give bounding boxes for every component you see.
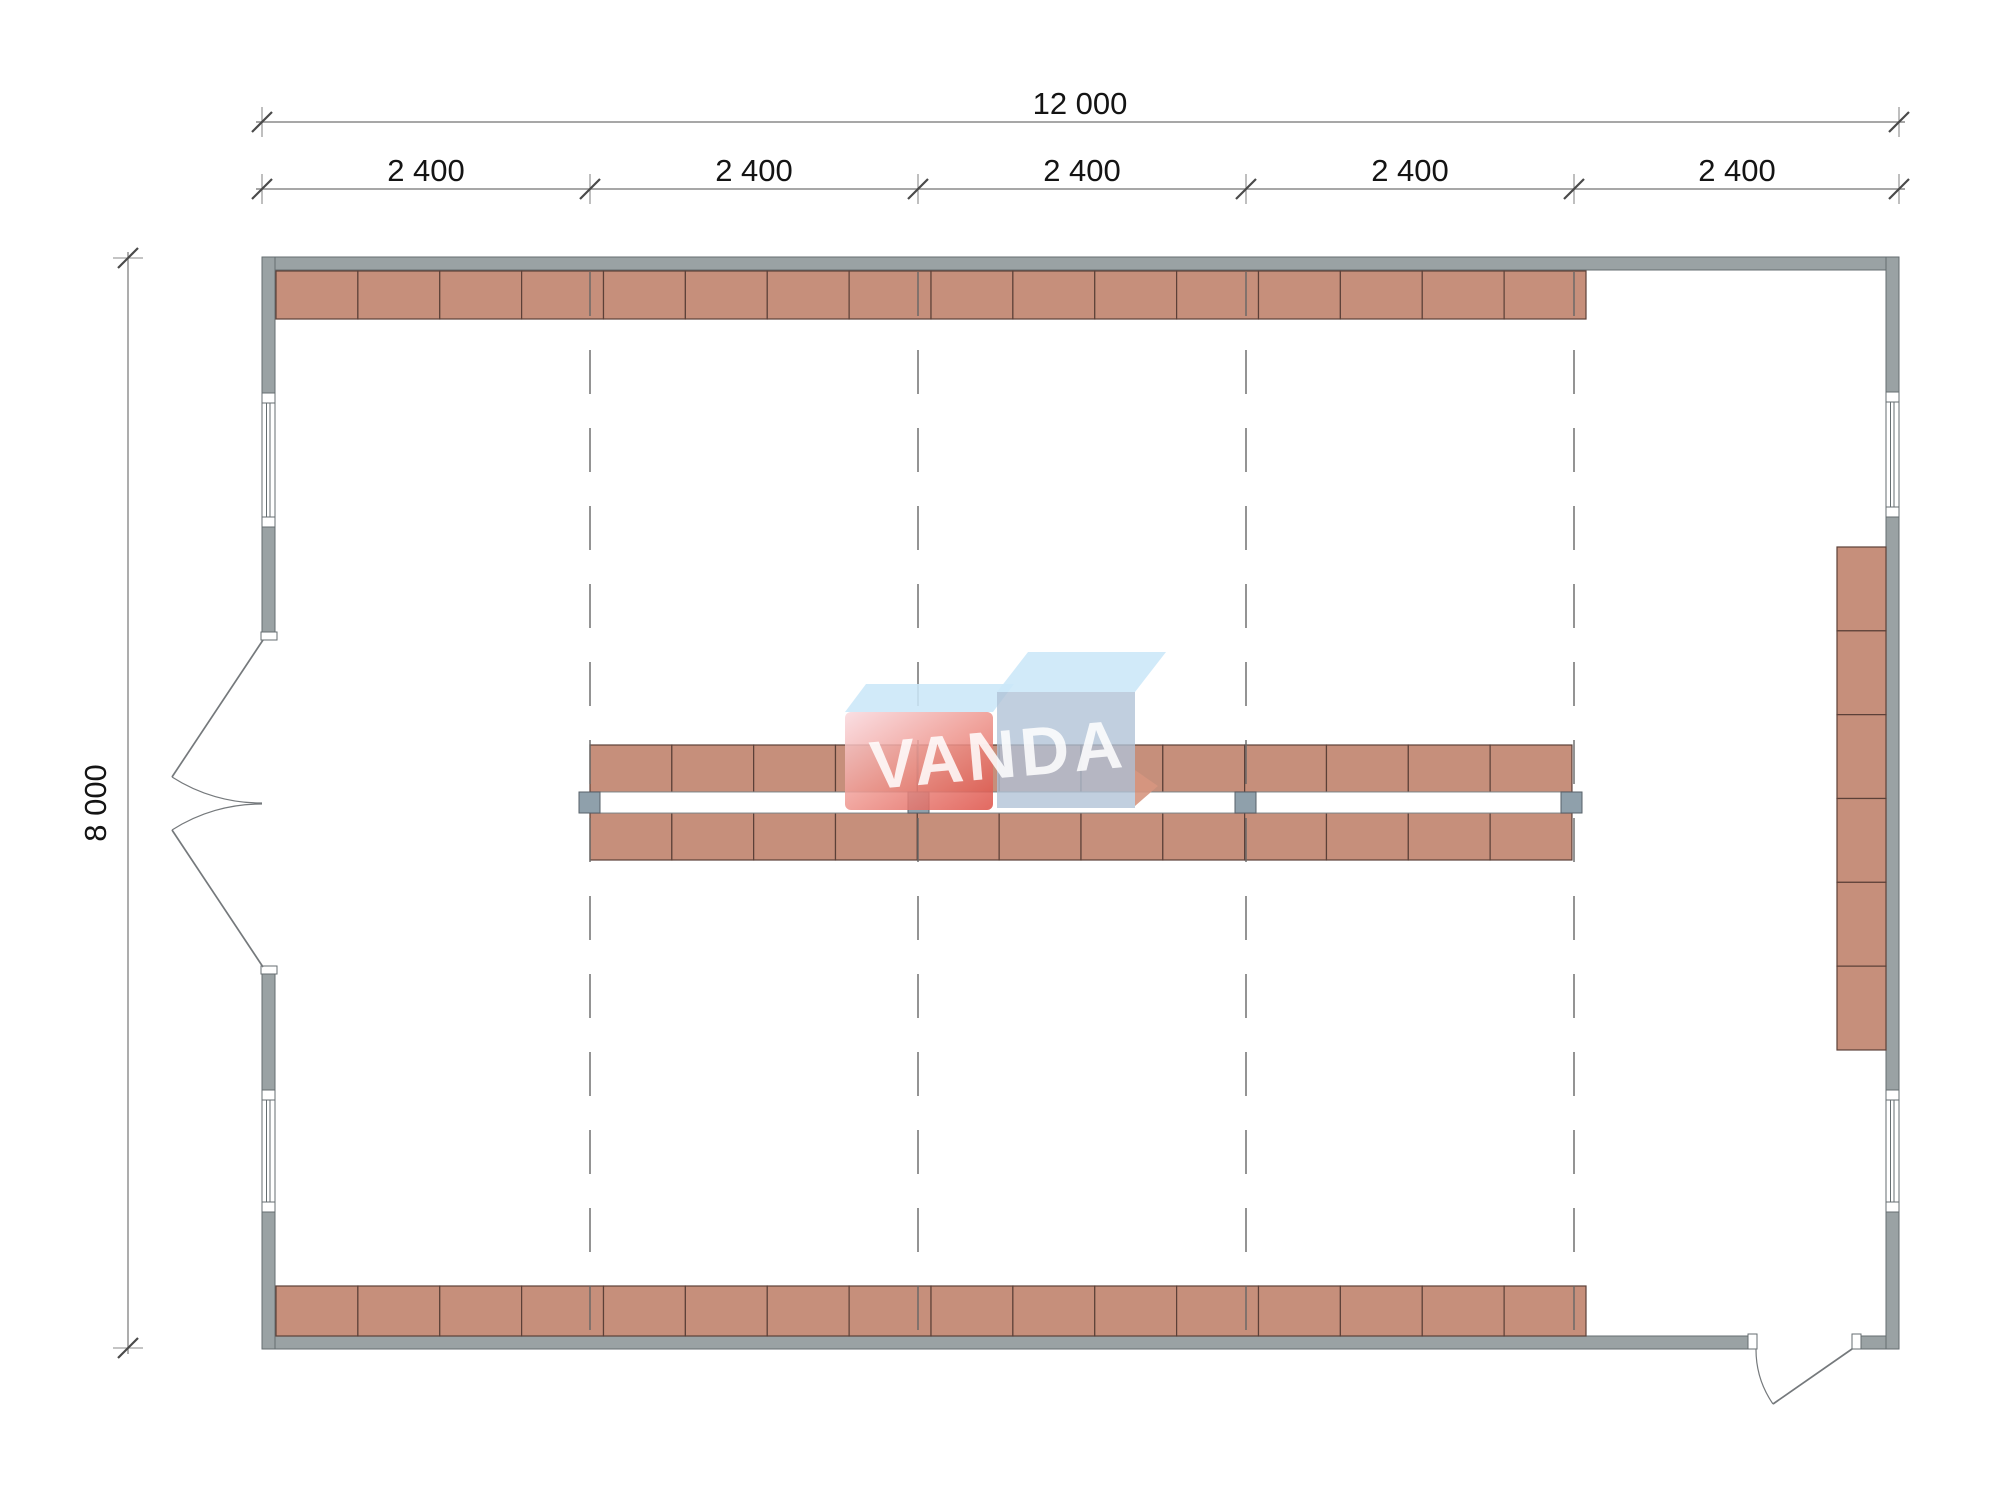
- door-jamb: [261, 966, 277, 974]
- door-swing-arc: [172, 804, 262, 830]
- shelf-unit: [590, 813, 672, 860]
- wall-segment: [262, 257, 1899, 270]
- window: [1886, 392, 1899, 517]
- shelf-unit: [1081, 813, 1163, 860]
- window-frame-cap: [262, 1090, 275, 1100]
- wall-segment: [262, 973, 275, 1090]
- shelf-unit: [1013, 1286, 1095, 1336]
- shelf-unit: [1095, 271, 1177, 319]
- shelf-unit: [672, 745, 754, 792]
- shelf-unit: [767, 1286, 849, 1336]
- vanda-watermark: VANDA: [845, 652, 1166, 810]
- shelf-unit: [1422, 271, 1504, 319]
- window: [262, 393, 275, 527]
- door-swing-arc: [1756, 1349, 1773, 1404]
- dimension-label-total-height: 8 000: [78, 764, 113, 842]
- shelf-unit: [604, 1286, 686, 1336]
- shelf-unit: [1837, 631, 1886, 715]
- dimension-label-total-width: 12 000: [1033, 86, 1128, 121]
- window-frame-cap: [1886, 392, 1899, 402]
- shelf-unit: [1245, 745, 1327, 792]
- shelf-unit: [358, 1286, 440, 1336]
- wall-segment: [262, 257, 275, 393]
- shelf-unit: [1163, 745, 1245, 792]
- window-frame-cap: [1886, 507, 1899, 517]
- shelf-unit: [1259, 271, 1341, 319]
- structural-column: [1235, 792, 1256, 813]
- shelf-unit: [1340, 1286, 1422, 1336]
- window: [262, 1090, 275, 1212]
- shelf-unit: [1490, 813, 1572, 860]
- shelf-unit: [672, 813, 754, 860]
- shelf-unit: [1837, 966, 1886, 1050]
- window-frame-cap: [1886, 1202, 1899, 1212]
- shelf-unit: [835, 813, 917, 860]
- door-leaf: [1773, 1349, 1852, 1404]
- shelf-unit: [917, 813, 999, 860]
- shelf-unit: [754, 813, 836, 860]
- dimension-label-bay-2: 2 400: [715, 153, 793, 188]
- shelf-unit: [522, 1286, 604, 1336]
- window-frame-cap: [262, 1202, 275, 1212]
- shelf-unit: [1245, 813, 1327, 860]
- door-leaf: [172, 640, 263, 777]
- shelf-unit: [1326, 813, 1408, 860]
- shelf-unit: [1837, 798, 1886, 882]
- shelf-unit: [590, 745, 672, 792]
- shelf-unit: [767, 271, 849, 319]
- shelf-unit: [999, 813, 1081, 860]
- shelf-unit: [1408, 745, 1490, 792]
- dimension-label-bay-4: 2 400: [1371, 153, 1449, 188]
- wall-segment: [262, 1336, 1748, 1349]
- shelf-unit: [522, 271, 604, 319]
- shelf-unit: [358, 271, 440, 319]
- shelf-unit: [754, 745, 836, 792]
- shelf-unit: [1259, 1286, 1341, 1336]
- shelf-unit: [1095, 1286, 1177, 1336]
- door-swing-arc: [172, 777, 262, 803]
- shelf-unit: [1013, 271, 1095, 319]
- watermark-right-cube-top: [997, 652, 1166, 692]
- shelf-unit: [276, 271, 358, 319]
- door-jamb: [261, 632, 277, 640]
- wall-segment: [1886, 1212, 1899, 1349]
- shelf-unit: [685, 271, 767, 319]
- wall-segment: [262, 1212, 275, 1349]
- shelf-unit: [1163, 813, 1245, 860]
- dimension-label-bay-1: 2 400: [387, 153, 465, 188]
- shelf-unit: [1837, 547, 1886, 631]
- floor-plan-canvas: 12 000 2 400 2 400 2 400 2 400 2 400 8 0…: [0, 0, 2000, 1488]
- shelf-unit: [1326, 745, 1408, 792]
- structural-column: [1561, 792, 1582, 813]
- shelf-unit: [849, 271, 931, 319]
- shelf-unit: [1837, 715, 1886, 799]
- shelf-unit: [1408, 813, 1490, 860]
- shelf-unit: [1837, 882, 1886, 966]
- shelf-unit: [849, 1286, 931, 1336]
- shelf-unit: [440, 1286, 522, 1336]
- shelf-unit: [1340, 271, 1422, 319]
- shelf-unit: [276, 1286, 358, 1336]
- shelf-unit: [931, 271, 1013, 319]
- shelf-unit: [1490, 745, 1572, 792]
- door-leaf: [172, 830, 263, 967]
- dimension-label-bay-3: 2 400: [1043, 153, 1121, 188]
- window-frame-cap: [262, 517, 275, 527]
- dimension-label-bay-5: 2 400: [1698, 153, 1776, 188]
- shelf-unit: [440, 271, 522, 319]
- wall-segment: [1886, 517, 1899, 1090]
- shelf-unit: [685, 1286, 767, 1336]
- shelf-unit: [931, 1286, 1013, 1336]
- shelf-unit: [604, 271, 686, 319]
- door-jamb: [1852, 1334, 1861, 1349]
- structural-column: [579, 792, 600, 813]
- window-frame-cap: [262, 393, 275, 403]
- window: [1886, 1090, 1899, 1212]
- wall-segment: [1886, 257, 1899, 392]
- shelf-unit: [1422, 1286, 1504, 1336]
- watermark-left-cube-top: [845, 684, 1014, 712]
- door-jamb: [1748, 1334, 1757, 1349]
- floor-plan-page: { "watermark": { "text": "VANDA" }, "dim…: [0, 0, 2000, 1488]
- window-frame-cap: [1886, 1090, 1899, 1100]
- wall-segment: [262, 527, 275, 633]
